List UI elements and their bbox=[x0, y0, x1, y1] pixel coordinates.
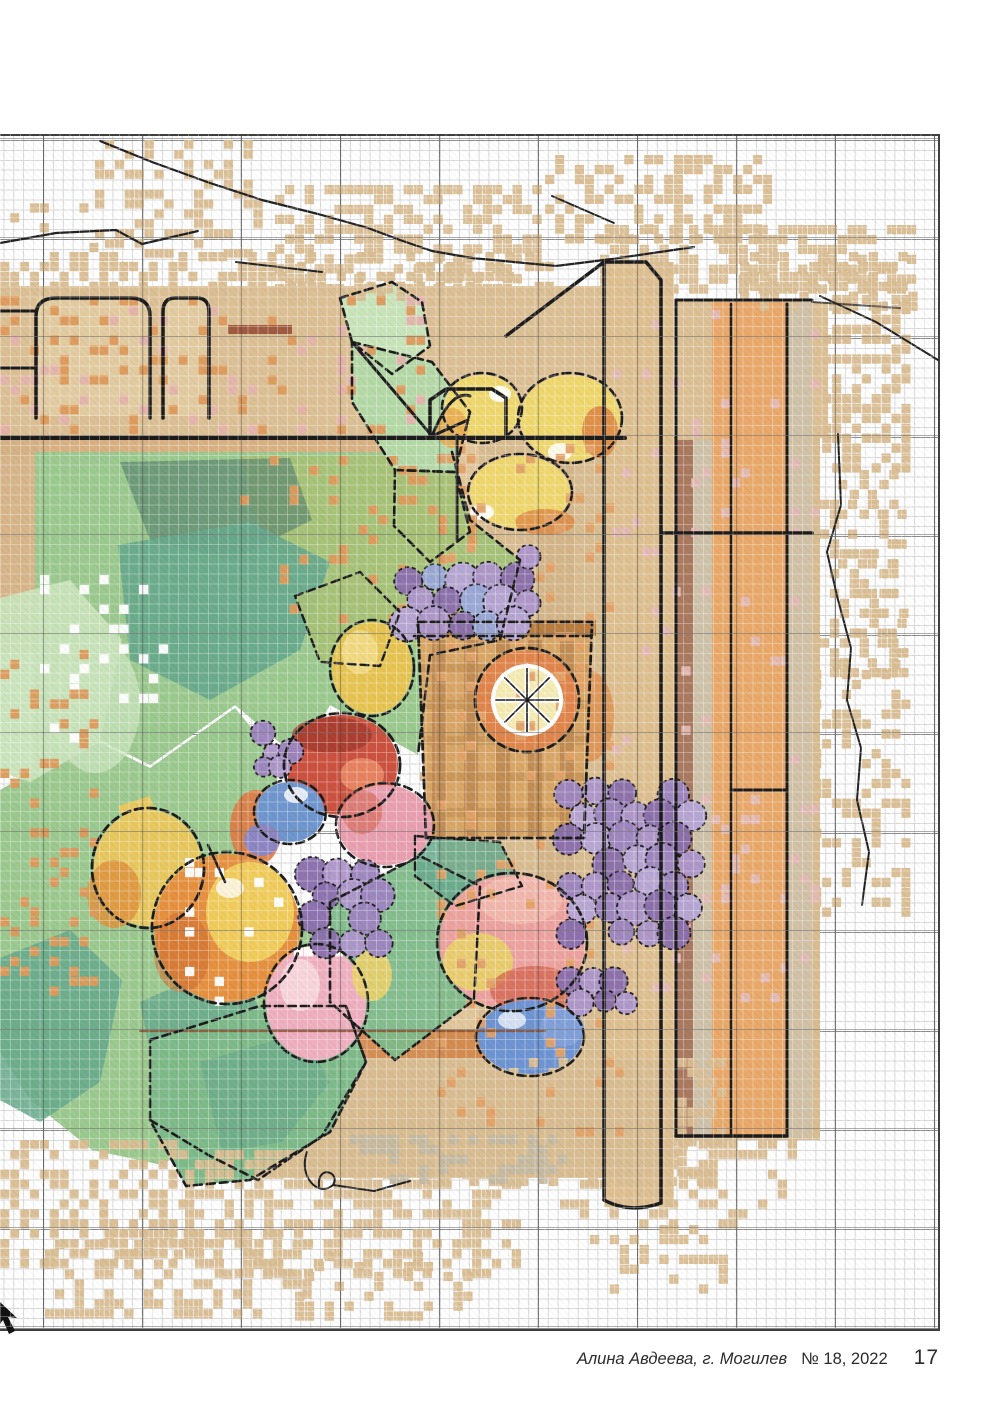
cloud-right-3 bbox=[871, 779, 880, 788]
cloud-above-rail bbox=[406, 252, 415, 261]
gray-table-row bbox=[459, 1155, 468, 1164]
orange-left-edge bbox=[50, 937, 59, 946]
white-holes-foliage-1 bbox=[139, 654, 148, 663]
cloud-bottom-3 bbox=[442, 1200, 451, 1209]
cloud-bottom-5 bbox=[570, 1150, 579, 1159]
orange-left-edge bbox=[20, 897, 29, 906]
cloud-right-1 bbox=[852, 394, 861, 403]
cloud-bottom-3 bbox=[195, 1229, 204, 1238]
footer-issue: № 18, 2022 bbox=[801, 1350, 888, 1369]
orange-left-edge bbox=[79, 729, 88, 738]
cloud-bottom-4 bbox=[628, 1058, 637, 1067]
cloud-top-mid bbox=[275, 215, 284, 224]
cloud-bottom-3 bbox=[512, 1249, 521, 1258]
cloud-bottom-2 bbox=[174, 1250, 183, 1259]
cloud-right-3 bbox=[832, 719, 841, 728]
cloud-top-mid bbox=[523, 205, 532, 214]
cloud-bottom-3 bbox=[373, 1219, 382, 1228]
cloud-top-right-1 bbox=[545, 175, 554, 184]
cloud-roof bbox=[809, 282, 818, 291]
cloud-bottom-5 bbox=[619, 1140, 628, 1149]
cloud-top-right-2 bbox=[709, 225, 718, 234]
cloud-above-rail bbox=[99, 272, 108, 281]
cloud-bottom-4 bbox=[569, 1167, 578, 1176]
cloud-bottom-3 bbox=[363, 1249, 372, 1258]
cloud-top-right-1 bbox=[644, 185, 653, 194]
cloud-bottom-5 bbox=[610, 1209, 619, 1218]
cloud-roof bbox=[740, 272, 749, 281]
cloud-bottom-3 bbox=[472, 1229, 481, 1238]
page: Алина Авдеева, г. Могилев № 18, 2022 17 bbox=[0, 0, 999, 1422]
cloud-bottom-1 bbox=[99, 1150, 108, 1159]
cloud-bottom-3 bbox=[294, 1180, 303, 1189]
cloud-top-right-2 bbox=[699, 284, 708, 293]
pink-on-planks bbox=[721, 449, 730, 458]
cloud-bottom-2 bbox=[293, 1250, 302, 1259]
cloud-right-3 bbox=[822, 719, 831, 728]
cloud-right-3 bbox=[832, 898, 841, 907]
cloud-bottom-5 bbox=[689, 1170, 698, 1179]
orange-in-foliage bbox=[290, 486, 299, 495]
pink-on-rail bbox=[297, 346, 306, 355]
pink-on-rail bbox=[396, 355, 405, 364]
cloud-bottom-2 bbox=[65, 1270, 74, 1279]
cloud-top-mid bbox=[344, 254, 353, 263]
cloud-top-right-2 bbox=[719, 245, 728, 254]
cloud-top-left bbox=[244, 150, 253, 159]
cloud-above-rail bbox=[0, 272, 9, 281]
gray-table-row bbox=[419, 1165, 428, 1174]
cloud-right-2 bbox=[879, 520, 888, 529]
cloud-bottom-3 bbox=[254, 1150, 263, 1159]
cloud-bottom-1 bbox=[50, 1219, 59, 1228]
cloud-bottom-1 bbox=[119, 1190, 128, 1199]
gray-table-row bbox=[380, 1135, 389, 1144]
cloud-bottom-1 bbox=[50, 1209, 59, 1218]
orange-on-rail bbox=[347, 296, 356, 305]
cloud-top-right-1 bbox=[565, 234, 574, 243]
cloud-top-left bbox=[164, 199, 173, 208]
gray-table-row bbox=[538, 1165, 547, 1174]
cloud-right-2 bbox=[820, 500, 829, 509]
orange-on-rail bbox=[99, 346, 108, 355]
cloud-right-1 bbox=[881, 384, 890, 393]
cloud-top-left bbox=[125, 199, 134, 208]
cloud-bottom-1 bbox=[50, 1170, 59, 1179]
cloud-right-1 bbox=[862, 335, 871, 344]
cloud-top-left bbox=[194, 239, 203, 248]
pink-on-planks bbox=[622, 468, 631, 477]
cloud-top-right-1 bbox=[723, 165, 732, 174]
pink-on-planks bbox=[642, 647, 651, 656]
cloud-bottom-3 bbox=[433, 1209, 442, 1218]
cloud-bottom-1 bbox=[50, 1150, 59, 1159]
cloud-top-left bbox=[145, 140, 154, 149]
cloud-top-mid bbox=[532, 215, 541, 224]
cloud-top-right-1 bbox=[674, 205, 683, 214]
cloud-bottom-5 bbox=[758, 1199, 767, 1208]
orange-on-rail bbox=[59, 405, 68, 414]
cloud-right-2 bbox=[830, 619, 839, 628]
pink-on-rail bbox=[337, 385, 346, 394]
cloud-bottom-4 bbox=[608, 1078, 617, 1087]
cloud-bottom-3 bbox=[363, 1200, 372, 1209]
cloud-top-right-2 bbox=[650, 225, 659, 234]
white-holes-foliage-2 bbox=[185, 868, 194, 877]
pink-on-planks bbox=[810, 884, 819, 893]
gray-table-row bbox=[508, 1165, 517, 1174]
cloud-bottom-2 bbox=[85, 1240, 94, 1249]
orange-on-rail bbox=[119, 346, 128, 355]
cloud-right-3 bbox=[812, 828, 821, 837]
cloud-top-mid bbox=[532, 185, 541, 194]
cloud-right-1 bbox=[832, 404, 841, 413]
cloud-above-rail bbox=[267, 252, 276, 261]
cloud-bottom-5 bbox=[610, 1150, 619, 1159]
cloud-bottom-3 bbox=[383, 1190, 392, 1199]
cloud-above-rail bbox=[79, 262, 88, 271]
pink-on-planks bbox=[711, 815, 720, 824]
cloud-roof bbox=[889, 262, 898, 271]
cloud-right-1 bbox=[822, 394, 831, 403]
pink-on-planks bbox=[810, 379, 819, 388]
cloud-right-3 bbox=[891, 868, 900, 877]
pink-on-planks bbox=[721, 884, 730, 893]
grape-cluster-right bbox=[678, 850, 705, 877]
cloud-top-mid bbox=[374, 195, 383, 204]
cloud-right-2 bbox=[889, 648, 898, 657]
orange-left-edge bbox=[10, 957, 19, 966]
cloud-right-1 bbox=[822, 424, 831, 433]
cloud-roof bbox=[790, 302, 799, 311]
orange-on-rail bbox=[40, 415, 49, 424]
cloud-bottom-3 bbox=[254, 1190, 263, 1199]
cloud-top-left bbox=[154, 170, 163, 179]
cloud-right-3 bbox=[862, 789, 871, 798]
cloud-bottom-3 bbox=[482, 1269, 491, 1278]
cloud-roof bbox=[799, 272, 808, 281]
orange-on-planks bbox=[576, 662, 585, 671]
cloud-top-left bbox=[135, 170, 144, 179]
cloud-bottom-2 bbox=[144, 1230, 153, 1239]
cloud-top-right-1 bbox=[585, 185, 594, 194]
cloud-bottom-3 bbox=[334, 1259, 343, 1268]
cloud-top-right-2 bbox=[907, 275, 916, 284]
orange-left-edge bbox=[50, 878, 59, 887]
cloud-top-right-1 bbox=[703, 155, 712, 164]
cloud-right-3 bbox=[901, 878, 910, 887]
cloud-top-left bbox=[135, 199, 144, 208]
white-holes-foliage-1 bbox=[99, 605, 108, 614]
grape-cluster-right bbox=[556, 919, 585, 948]
orange-left-edge bbox=[30, 917, 39, 926]
pink-on-planks bbox=[642, 369, 651, 378]
cloud-bottom-3 bbox=[264, 1219, 273, 1228]
cloud-above-rail bbox=[178, 262, 187, 271]
cloud-right-1 bbox=[842, 354, 851, 363]
cloud-top-right-2 bbox=[818, 225, 827, 234]
cloud-right-4 bbox=[888, 668, 897, 677]
cloud-top-mid bbox=[532, 235, 541, 244]
white-holes-foliage-1 bbox=[159, 644, 168, 653]
cloud-bottom-3 bbox=[472, 1190, 481, 1199]
cloud-top-right-1 bbox=[703, 195, 712, 204]
cloud-top-left bbox=[184, 160, 193, 169]
cloud-above-rail bbox=[218, 272, 227, 281]
cloud-bottom-3 bbox=[462, 1209, 471, 1218]
cloud-right-4 bbox=[848, 549, 857, 558]
cloud-top-right-2 bbox=[679, 265, 688, 274]
cloud-bottom-3 bbox=[284, 1200, 293, 1209]
cloud-right-4 bbox=[878, 668, 887, 677]
gray-table-row bbox=[538, 1175, 547, 1184]
cloud-above-rail bbox=[109, 252, 118, 261]
cloud-top-mid bbox=[344, 225, 353, 234]
grape-cluster-right bbox=[675, 894, 702, 921]
orange-left-edge bbox=[59, 868, 68, 877]
cloud-right-4 bbox=[848, 530, 857, 539]
cloud-bottom-7 bbox=[669, 1235, 678, 1244]
cloud-bottom-4 bbox=[717, 1058, 726, 1067]
cloud-above-rail bbox=[465, 282, 474, 291]
pink-on-planks bbox=[612, 369, 621, 378]
cloud-right-2 bbox=[830, 668, 839, 677]
cloud-right-1 bbox=[832, 414, 841, 423]
cloud-roof bbox=[859, 262, 868, 271]
cloud-bottom-2 bbox=[184, 1240, 193, 1249]
pink-on-planks bbox=[642, 548, 651, 557]
orange-on-rail bbox=[198, 365, 207, 374]
cloud-bottom-3 bbox=[452, 1209, 461, 1218]
pink-on-planks bbox=[681, 726, 690, 735]
cloud-bottom-3 bbox=[393, 1269, 402, 1278]
cloud-top-left bbox=[135, 219, 144, 228]
cloud-top-left bbox=[244, 180, 253, 189]
cloud-above-rail bbox=[228, 272, 237, 281]
cloud-right-1 bbox=[881, 434, 890, 443]
cloud-bottom-4 bbox=[628, 1108, 637, 1117]
orange-on-planks bbox=[566, 444, 575, 453]
cloud-top-left bbox=[145, 190, 154, 199]
cloud-above-rail bbox=[218, 282, 227, 291]
cloud-right-4 bbox=[878, 609, 887, 618]
cloud-right-3 bbox=[842, 729, 851, 738]
cloud-top-right-2 bbox=[709, 275, 718, 284]
cloud-right-4 bbox=[878, 629, 887, 638]
cloud-right-3 bbox=[832, 799, 841, 808]
white-holes-foliage-1 bbox=[109, 625, 118, 634]
orange-left-edge bbox=[10, 927, 19, 936]
cloud-top-mid bbox=[384, 225, 393, 234]
orange-left-edge bbox=[30, 947, 39, 956]
cloud-bottom-3 bbox=[383, 1200, 392, 1209]
cloud-top-mid bbox=[364, 185, 373, 194]
cloud-right-1 bbox=[891, 354, 900, 363]
cloud-top-mid bbox=[285, 215, 294, 224]
cloud-right-1 bbox=[872, 404, 881, 413]
gray-table-row bbox=[508, 1135, 517, 1144]
cloud-bottom-1 bbox=[0, 1259, 9, 1268]
cloud-right-1 bbox=[852, 453, 861, 462]
cloud-bottom-1 bbox=[158, 1190, 167, 1199]
cloud-top-mid bbox=[354, 205, 363, 214]
orange-left-edge bbox=[0, 917, 9, 926]
cloud-top-mid bbox=[463, 215, 472, 224]
cloud-top-mid bbox=[414, 235, 423, 244]
cloud-bottom-4 bbox=[697, 1108, 706, 1117]
cloud-right-3 bbox=[891, 660, 900, 669]
cloud-top-mid bbox=[523, 235, 532, 244]
orange-on-rail bbox=[406, 336, 415, 345]
cloud-roof bbox=[879, 262, 888, 271]
cloud-bottom-4 bbox=[677, 1098, 686, 1107]
orange-left-edge bbox=[20, 769, 29, 778]
orange-on-planks bbox=[487, 1117, 496, 1126]
cloud-bottom-2 bbox=[114, 1250, 123, 1259]
cloud-bottom-3 bbox=[334, 1160, 343, 1169]
cloud-bottom-6 bbox=[404, 1311, 413, 1320]
orange-on-rail bbox=[267, 355, 276, 364]
cloud-bottom-4 bbox=[668, 1137, 677, 1146]
cloud-bottom-1 bbox=[139, 1160, 148, 1169]
cloud-top-right-2 bbox=[659, 265, 668, 274]
pink-on-rail bbox=[337, 415, 346, 424]
orange-on-rail bbox=[416, 365, 425, 374]
cloud-bottom-5 bbox=[709, 1160, 718, 1169]
pink-on-planks bbox=[810, 508, 819, 517]
cloud-top-right-2 bbox=[897, 225, 906, 234]
cloud-bottom-3 bbox=[353, 1219, 362, 1228]
cloud-bottom-4 bbox=[618, 1177, 627, 1186]
cloud-right-4 bbox=[897, 510, 906, 519]
cloud-bottom-2 bbox=[144, 1240, 153, 1249]
cloud-top-mid bbox=[483, 205, 492, 214]
cloud-bottom-5 bbox=[738, 1150, 747, 1159]
white-holes-foliage-1 bbox=[119, 644, 128, 653]
orange-left-edge bbox=[30, 699, 39, 708]
cloud-top-mid bbox=[483, 215, 492, 224]
cloud-right-2 bbox=[850, 490, 859, 499]
cloud-bottom-3 bbox=[225, 1150, 234, 1159]
cloud-top-left bbox=[145, 249, 154, 258]
cloud-bottom-4 bbox=[460, 1127, 469, 1136]
cloud-bottom-5 bbox=[590, 1150, 599, 1159]
cloud-top-mid bbox=[344, 185, 353, 194]
cloud-bottom-5 bbox=[709, 1199, 718, 1208]
cloud-bottom-6 bbox=[453, 1292, 462, 1301]
cloud-bottom-5 bbox=[788, 1140, 797, 1149]
cloud-bottom-3 bbox=[383, 1229, 392, 1238]
cloud-bottom-5 bbox=[699, 1160, 708, 1169]
cloud-top-right-2 bbox=[778, 225, 787, 234]
cloud-bottom-2 bbox=[253, 1309, 262, 1318]
cloud-right-2 bbox=[850, 579, 859, 588]
gray-table-row bbox=[538, 1145, 547, 1154]
orange-left-edge bbox=[10, 779, 19, 788]
pink-on-planks bbox=[691, 429, 700, 438]
cloud-bottom-1 bbox=[168, 1180, 177, 1189]
cloud-bottom-3 bbox=[195, 1190, 204, 1199]
cloud-above-rail bbox=[50, 282, 59, 291]
cloud-top-right-2 bbox=[729, 255, 738, 264]
cloud-right-2 bbox=[860, 648, 869, 657]
cloud-corner bbox=[10, 213, 19, 222]
cloud-roof bbox=[849, 252, 858, 261]
cloud-top-mid bbox=[285, 235, 294, 244]
gray-table-row bbox=[548, 1165, 557, 1174]
cloud-bottom-1 bbox=[20, 1160, 29, 1169]
cloud-bottom-4 bbox=[578, 1068, 587, 1077]
cloud-top-right-1 bbox=[743, 185, 752, 194]
cloud-top-right-2 bbox=[758, 245, 767, 254]
plank-orange-strip bbox=[712, 302, 786, 1138]
cloud-above-rail bbox=[307, 272, 316, 281]
cloud-corner bbox=[40, 223, 49, 232]
cloud-bottom-4 bbox=[618, 1117, 627, 1126]
orange-on-planks bbox=[526, 771, 535, 780]
orange-on-rail bbox=[59, 365, 68, 374]
cloud-bottom-5 bbox=[649, 1160, 658, 1169]
cloud-bottom-5 bbox=[728, 1209, 737, 1218]
cloud-bottom-5 bbox=[718, 1150, 727, 1159]
cloud-top-right-1 bbox=[753, 205, 762, 214]
cloud-bottom-6 bbox=[424, 1302, 433, 1311]
orange-on-planks bbox=[536, 1117, 545, 1126]
cloud-bottom-3 bbox=[442, 1209, 451, 1218]
cloud-top-mid bbox=[305, 225, 314, 234]
gray-table-row bbox=[449, 1155, 458, 1164]
pink-on-rail bbox=[337, 355, 346, 364]
orange-in-foliage bbox=[339, 545, 348, 554]
cloud-bottom-5 bbox=[699, 1170, 708, 1179]
cloud-right-2 bbox=[830, 549, 839, 558]
cloud-top-mid bbox=[473, 215, 482, 224]
cloud-bottom-1 bbox=[178, 1150, 187, 1159]
pink-on-rail bbox=[109, 316, 118, 325]
cloud-bottom-3 bbox=[195, 1160, 204, 1169]
cloud-bottom-4 bbox=[707, 1078, 716, 1087]
cloud-above-rail bbox=[337, 272, 346, 281]
cloud-right-1 bbox=[852, 404, 861, 413]
cloud-bottom-6 bbox=[295, 1302, 304, 1311]
cloud-top-right-2 bbox=[630, 284, 639, 293]
cloud-bottom-4 bbox=[648, 1088, 657, 1097]
cloud-right-3 bbox=[901, 888, 910, 897]
cloud-right-1 bbox=[881, 453, 890, 462]
cloud-right-4 bbox=[888, 539, 897, 548]
footer: Алина Авдеева, г. Могилев № 18, 2022 17 bbox=[577, 1346, 939, 1370]
cloud-bottom-4 bbox=[608, 1088, 617, 1097]
cloud-bottom-5 bbox=[709, 1140, 718, 1149]
cloud-bottom-4 bbox=[559, 1098, 568, 1107]
pink-on-planks bbox=[751, 637, 760, 646]
orange-on-rail bbox=[416, 336, 425, 345]
orange-on-rail bbox=[50, 306, 59, 315]
cloud-bottom-4 bbox=[509, 1108, 518, 1117]
cloud-above-rail bbox=[59, 282, 68, 291]
cloud-bottom-4 bbox=[648, 1127, 657, 1136]
orange-left-edge bbox=[0, 769, 9, 778]
cloud-top-right-1 bbox=[604, 165, 613, 174]
cloud-bottom-2 bbox=[75, 1299, 84, 1308]
cloud-roof bbox=[839, 282, 848, 291]
cloud-right-3 bbox=[881, 710, 890, 719]
cloud-bottom-3 bbox=[353, 1200, 362, 1209]
cloud-top-mid bbox=[285, 185, 294, 194]
cloud-above-rail bbox=[248, 272, 257, 281]
pink-on-planks bbox=[721, 508, 730, 517]
cloud-bottom-4 bbox=[668, 1177, 677, 1186]
